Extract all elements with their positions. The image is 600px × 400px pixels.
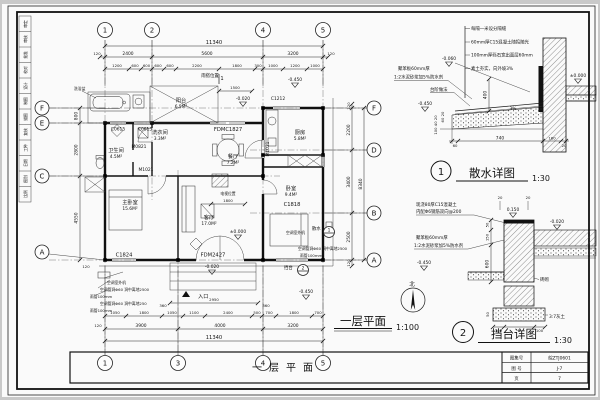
signature-cell: 校对 [23,66,28,74]
level-label: -0.450 [417,260,431,266]
dim-label: 100 40 20 [433,115,438,135]
dim-label: 11340 [206,40,223,46]
plan-scale: 1:100 [396,323,419,332]
note-label: 空调室外机 [286,230,305,235]
dim-label: 600 [131,63,139,68]
room-area: 6.5M² [175,104,188,110]
note-label: 挡台 [284,264,293,271]
room-name: 客厅 [204,213,214,221]
dim-label: 5600 [201,51,212,57]
level-label: 0.150 [507,207,520,213]
dim-label: 360 [262,303,270,308]
level-label: -0.020 [205,264,219,270]
detail-title: 散水详图 [469,166,515,180]
room-name: 洗衣间 [152,128,168,136]
drawing-sheet: 审定 审核 批准 校对 设计 制图 描图 复核 工种 日期 图别 比例 1 2 … [0,0,600,400]
dim-label: 3200 [287,51,298,57]
room-name: 阳台 [176,96,186,104]
signature-cell: 制图 [23,97,28,105]
opening-label: FDMC1827 [214,127,242,133]
detail-note: 60mm厚C15混凝土随捣随光 [471,39,530,46]
dim-label: 120 [94,323,102,328]
level-label: -0.450 [299,289,313,295]
grid-bubble-label: 2 [150,27,154,35]
signature-cell: 复核 [23,128,28,136]
dim-label: 1800 [232,63,242,68]
opening-label: M0821 [132,144,147,150]
note-label: 空调管洞Φ60 洞中离地250 [100,301,147,306]
room-area: 17.0M² [201,221,217,227]
dim-label: 2400 [122,51,133,57]
note-label: 电视位置 [220,191,235,196]
dim-label: 8340 [358,178,364,189]
room-name: 餐厅 [228,152,238,160]
dim-label: 300 [254,63,262,68]
dim-label: 600 [166,63,174,68]
grid-bubble-label: A [372,257,377,265]
grid-bubble-label: 1 [103,360,107,368]
grid-bubble-label: F [40,105,44,113]
grid-bubble-label: 3 [176,360,180,368]
dim-label: 740 [496,136,505,142]
detail-note: 100mm厚砾石宽出面层60mm [471,52,533,59]
dim-label: 600 [143,63,151,68]
room-area: 7.2M² [227,160,240,166]
detail-note: 内配Φ6钢筋双向@200 [416,208,462,215]
grid-bubble-label: 1 [103,27,107,35]
dim-label: 1800 [223,198,233,203]
detail-note: 聚苯板60mm厚 [416,234,448,241]
section-flag: 1 [220,76,223,82]
detail-note: 素土夯实，向外坡3% [471,65,513,72]
dim-label: 600 [154,63,162,68]
dim-label: 3% [510,106,517,112]
detail-note: 现浇80厚C15混凝土 [416,201,457,208]
dim-label: 2200 [346,124,352,135]
note-label: 雨管100mm [300,253,323,258]
dim-label: 20 [498,195,503,200]
dim-label: 3200 [287,323,298,329]
grid-bubble-label: C [40,173,45,181]
dim-label: 2950 [209,297,219,302]
title-block-value: J-7 [556,366,563,372]
detail-number: 1 [438,167,444,178]
dim-label: 800 [74,112,80,121]
dim-label: 700 [265,310,273,315]
dim-label: 700 [314,310,322,315]
dim-label: 120 [82,264,90,269]
title-block-title: 一层平面 [252,362,320,374]
room-area: 15.6M² [122,206,138,212]
grid-bubble-label: F [372,105,376,113]
dim-label: 20 [562,143,567,148]
level-label: -0.020 [236,96,250,102]
opening-label: C1824 [116,253,134,259]
dim-label: 1200 [290,63,300,68]
dim-label: 2200 [192,63,202,68]
detail-ref-bubble: 2 [302,266,305,272]
signature-cell: 比例 [23,190,28,198]
dim-label: 180 [548,136,556,141]
detail-note: 3:7灰土 [549,313,565,320]
note-label: 空调管洞Φ60 洞中离地2500 [298,246,348,251]
dim-label: 120 [346,259,351,267]
dim-label: 120 [93,51,101,56]
note-label: 雨管100mm [90,294,113,299]
dim-label: 1500 [230,85,240,90]
grid-bubble-label: E [40,120,44,128]
dim-label: 2400 [223,310,233,315]
note-label: 空调管洞Φ60 洞中离地2500 [100,287,150,292]
grid-bubble-label: B [372,210,377,218]
room-name: 主卧室 [122,198,138,206]
level-label: -0.450 [418,101,432,107]
dim-label: 120 [346,102,351,110]
signature-cell: 日期 [23,159,28,167]
dim-label: 400 [483,91,489,100]
room-area: 3.3M² [154,136,167,142]
note-label: 入口 [198,293,208,300]
opening-label: C0615 [111,127,125,133]
dim-label: 4550 [74,212,80,223]
opening-label: C1212 [271,96,285,102]
dim-label: 1000 [268,63,278,68]
dim-label: 100 [536,328,544,333]
room-area: 9.4M² [285,192,298,198]
detail-scale: 1:30 [532,174,550,183]
detail-note: 台阶做法 [430,86,448,93]
level-label: -0.060 [442,56,456,62]
dim-label: 50 [485,222,490,227]
dim-label: 120 [327,51,335,56]
title-block-value: 皖ZTJ0601 [548,355,571,362]
dim-label: 20 [526,195,531,200]
grid-bubble-label: 5 [321,27,325,35]
dim-label: 1800 [139,310,149,315]
dim-label: 11340 [206,335,223,341]
opening-label: FDM2427 [201,253,226,259]
detail-note: 每隔一米设分隔缝 [471,25,507,32]
dim-label: 500 [253,310,261,315]
dim-label: 3900 [135,323,146,329]
signature-cell: 审定 [23,20,28,28]
room-area: 5.8M² [294,136,307,142]
dim-label: 50 [485,312,490,317]
dim-label: 60 [453,143,458,148]
dim-label: 360 [159,303,167,308]
dim-label: 3400 [346,176,352,187]
grid-bubble-label: D [371,147,376,155]
dim-label: 1050 [167,310,177,315]
dim-label: 600 [485,260,491,269]
room-name: 厨房 [295,128,305,136]
signature-cell: 图别 [23,175,28,183]
opening-label: C1818 [284,202,301,208]
detail-number: 2 [460,328,466,339]
note-label: 散水 [312,225,321,232]
detail-ref-bubble: 1 [328,228,331,234]
note-label: 雨管100mm [90,308,113,313]
title-block-label: 页 [514,376,519,382]
dim-label: 1000 [310,63,320,68]
room-area: 4.5M² [110,154,123,160]
opening-label: M1021 [139,167,154,173]
signature-cell: 描图 [23,113,28,121]
room-name: 卫生间 [108,146,124,154]
detail-title: 挡台详图 [491,327,537,341]
level-label: ±0.000 [570,73,586,79]
dim-label: 1200 [112,63,122,68]
room-name: 卧室 [286,184,296,192]
detail-note: 砖砌 [540,276,549,283]
north-label: 北 [409,280,415,288]
grid-bubble-label: A [40,249,45,257]
opening-label: C0615 [138,127,152,133]
detail-note: 1:2水泥砂浆加5%防水剂 [414,242,464,249]
title-block-label: 图 号 [511,366,522,372]
dim-label: 1100 [189,310,199,315]
grid-bubble-label: 4 [261,27,266,35]
dim-label: 2800 [74,144,80,155]
note-label: 洗浴盆 [74,86,86,91]
dim-label: 150 [485,233,490,241]
opening-label: M1021 [265,141,271,156]
level-label: -0.450 [288,77,302,83]
grid-bubble-label: 5 [321,360,325,368]
dim-label: 1800 [289,310,299,315]
title-block-value: 7 [558,376,561,382]
plan-title-text: 一层平面 [340,314,386,328]
signature-cell: 审核 [23,35,28,43]
detail-note: 1:2水泥砂浆加5%防水剂 [394,74,444,81]
signature-cell: 批准 [23,51,28,59]
dim-label: 60 20 [440,111,445,122]
title-block-label: 图集号 [510,355,524,362]
note-label: 空调室外机 [107,280,126,285]
level-label: -0.020 [550,219,564,225]
detail-note: 聚苯板60mm厚 [398,65,430,72]
signature-cell: 设计 [23,82,28,90]
dim-label: 2500 [346,231,352,242]
level-label: ±0.000 [230,229,246,235]
signature-cell: 工种 [23,144,28,152]
detail-scale: 1:30 [554,336,572,345]
dim-label: 4000 [214,323,225,329]
note-label: 雨搭位置 [201,72,219,79]
